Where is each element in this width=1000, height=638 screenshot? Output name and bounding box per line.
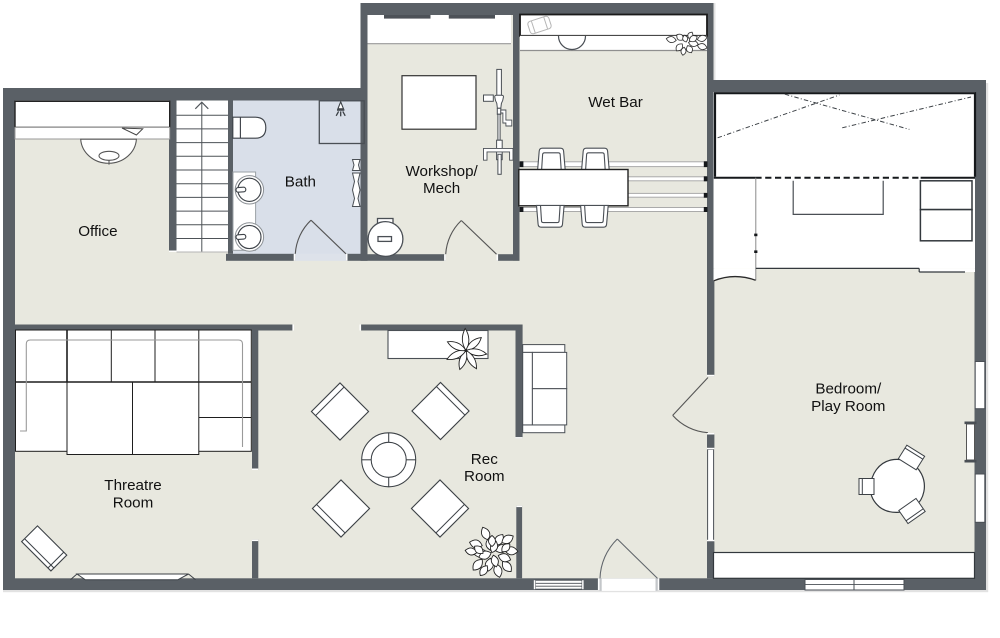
svg-text:Workshop/: Workshop/ — [405, 163, 478, 180]
svg-text:Bedroom/: Bedroom/ — [815, 381, 882, 398]
svg-text:Room: Room — [464, 468, 505, 485]
svg-text:Office: Office — [78, 223, 117, 240]
svg-text:Room: Room — [113, 495, 154, 512]
svg-text:Wet Bar: Wet Bar — [588, 94, 643, 111]
svg-text:Rec: Rec — [471, 451, 498, 468]
svg-text:Mech: Mech — [423, 180, 460, 197]
svg-text:Bath: Bath — [285, 173, 316, 190]
svg-text:Play Room: Play Room — [811, 398, 885, 415]
svg-text:Threatre: Threatre — [104, 477, 161, 494]
